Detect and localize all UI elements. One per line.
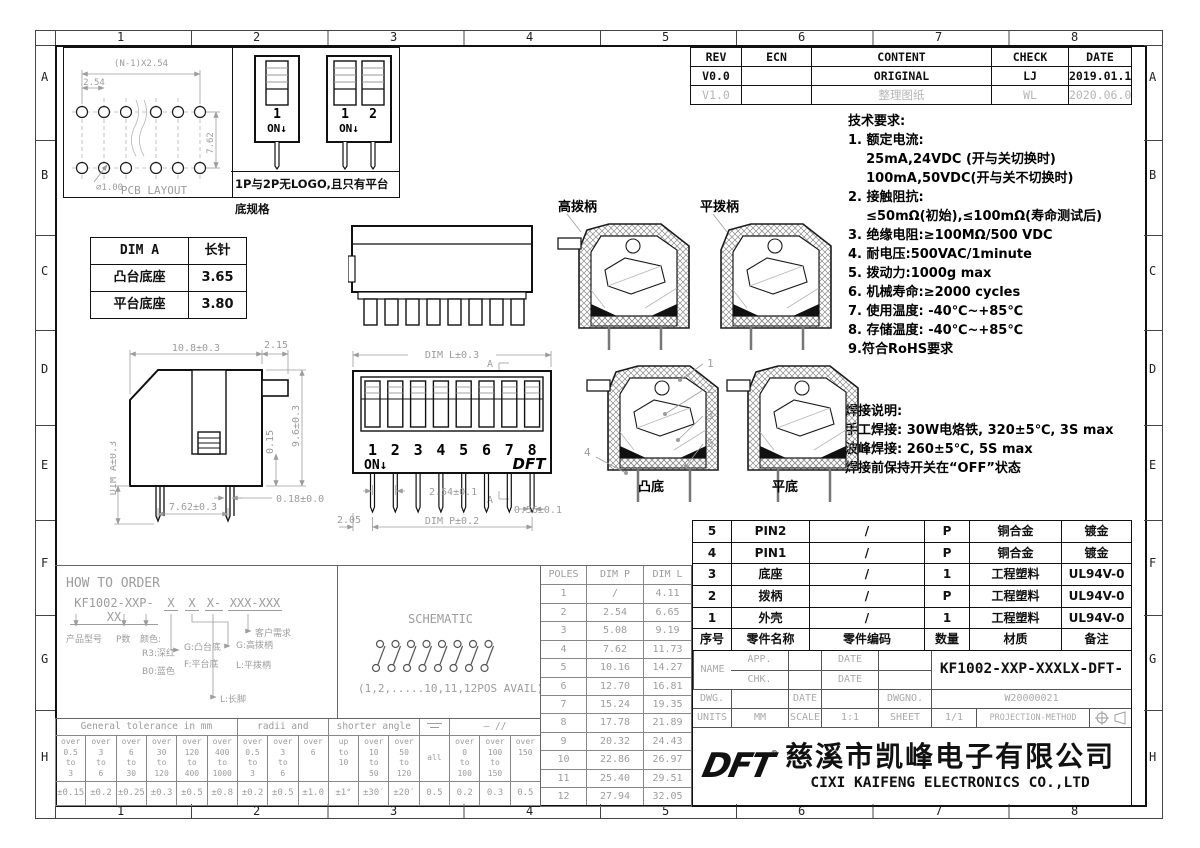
order-label-color: 颜色: <box>140 632 161 645</box>
bom-cell: 铜合金 <box>969 521 1061 542</box>
projection-symbol-icon <box>1089 708 1131 727</box>
tol-range: over 100 to 150 <box>479 736 509 782</box>
tol-value: 0.3 <box>479 782 509 806</box>
order-color-1: R3:深红 <box>142 646 175 659</box>
row-label: H <box>41 750 48 764</box>
row-label: G <box>1149 652 1156 666</box>
projection-label: PROJECTION-METHOD <box>976 708 1089 727</box>
row-label: H <box>1149 750 1156 764</box>
poles-cell: 9.19 <box>643 621 691 639</box>
row-label: G <box>41 652 48 666</box>
poles-cell: 2 <box>541 603 586 621</box>
bom-header: 材质 <box>969 628 1061 650</box>
tol-range: up to 10 <box>328 736 358 782</box>
bom-cell: 1 <box>924 563 969 585</box>
order-pin-label: L:长脚 <box>220 692 246 705</box>
poles-cell: 21.89 <box>643 713 691 731</box>
solder-line: 焊接前保持开关在“OFF”状态 <box>845 459 1021 478</box>
tol-value: ±30′ <box>358 782 388 806</box>
poles-cell: 14.27 <box>643 658 691 676</box>
bom-cell: 4 <box>693 542 731 564</box>
col-label: 3 <box>390 804 397 818</box>
tol-range: over 400 to 1000 <box>207 736 237 782</box>
dwgno-value: W20000021 <box>931 689 1131 708</box>
tol-value: ±20′ <box>388 782 418 806</box>
col-label: 2 <box>253 804 260 818</box>
right-tick-strip <box>1144 45 1163 805</box>
side-view-drawing: 10.8±0.3 2.15 9.6±0.3 0.15 0.18±0.05 7.6… <box>110 338 325 533</box>
tech-line: 5. 拨动力:1000g max <box>848 264 991 283</box>
tol-value: ±0.2 <box>85 782 115 806</box>
tol-value: ±1° <box>328 782 358 806</box>
tech-line: 6. 机械寿命:≥2000 cycles <box>848 283 1020 302</box>
poles-cell: 27.94 <box>586 787 643 805</box>
tol-value: ±0.2 <box>237 782 267 806</box>
date-value <box>878 651 931 670</box>
bom-cell: UL94V-0 <box>1061 585 1131 607</box>
poles-cell: 29.51 <box>643 769 691 787</box>
callout-number: 3 <box>707 409 714 422</box>
front-dim-pin-w: 0.56±0.1 <box>514 505 562 516</box>
bom-cell: 镀金 <box>1061 542 1131 564</box>
bom-cell: 3 <box>693 563 731 585</box>
poles-header: DIM L <box>643 566 691 584</box>
poles-cell: 4 <box>541 640 586 658</box>
poles-cell: 8 <box>541 713 586 731</box>
app-label: APP. <box>731 651 788 670</box>
poles-cell: 6 <box>541 677 586 695</box>
row-label: D <box>1149 362 1156 376</box>
solder-line: 手工焊接: 30W电烙铁, 320±5℃, 3S max <box>845 421 1114 440</box>
col-label: 1 <box>117 804 124 818</box>
poles-cell: 5 <box>541 658 586 676</box>
rev-cell <box>741 85 811 104</box>
schematic-title: SCHEMATIC <box>408 612 473 626</box>
bom-header: 序号 <box>693 628 731 650</box>
poles-cell: 20.32 <box>586 732 643 750</box>
tol-range: over 0 to 100 <box>449 736 479 782</box>
rev-cell: WL <box>991 85 1068 104</box>
sw2-number-1: 1 <box>341 107 349 122</box>
col-label: 4 <box>526 804 533 818</box>
callout-number: 2 <box>707 383 714 396</box>
tech-line: 7. 使用温度: -40℃~+85℃ <box>848 302 1023 321</box>
company-name-cn: 慈溪市凯峰电子有限公司 <box>785 740 1115 774</box>
company-block: DFT ® 慈溪市凯峰电子有限公司 CIXI KAIFENG ELECTRONI… <box>693 727 1131 803</box>
mini-switch-note: 1P与2P无LOGO,且只有平台底规格 <box>231 171 399 197</box>
poles-cell: 25.40 <box>586 769 643 787</box>
poles-cell: 16.81 <box>643 677 691 695</box>
tech-line: 100mA,50VDC(开与关不切换时) <box>848 169 1073 188</box>
bom-cell: / <box>809 563 924 585</box>
dft-logo: DFT <box>701 757 773 775</box>
tol-range: over 120 to 400 <box>176 736 206 782</box>
rev-cell <box>741 66 811 85</box>
row-label: E <box>1149 458 1156 472</box>
scale-label: SCALE <box>788 708 821 727</box>
rev-header: CONTENT <box>811 48 991 66</box>
callout-number: 1 <box>707 357 714 370</box>
col-label: 6 <box>798 30 805 44</box>
front-dim-top: DIM L±0.3 <box>425 350 479 361</box>
bom-cell: 拨柄 <box>731 585 809 607</box>
row-label: A <box>41 70 48 84</box>
title-block: APP. DATE NAME KF1002-XXP-XXXLX-DFT-XXX … <box>692 650 1132 807</box>
poles-cell: 22.86 <box>586 750 643 768</box>
mini-switch-panel: 1 ON↓ 1 2 ON↓ 1P与2P无LOGO,且只有平台底规格 <box>231 47 400 198</box>
tech-line: 9.符合RoHS要求 <box>848 340 953 359</box>
bom-cell: UL94V-0 <box>1061 563 1131 585</box>
row-label: F <box>1149 556 1156 570</box>
poles-cell: 24.43 <box>643 732 691 750</box>
order-customer-label: 客户需求 <box>255 626 291 639</box>
left-tick-strip <box>36 45 55 805</box>
tolerance-table: General tolerance in mm radii and chamfe… <box>55 718 541 806</box>
col-label: 1 <box>117 30 124 44</box>
poles-cell: 26.97 <box>643 750 691 768</box>
sw1-on-label: ON↓ <box>267 122 287 135</box>
rev-cell: ORIGINAL <box>811 66 991 85</box>
bom-cell: 2 <box>693 585 731 607</box>
tol-value: ±1.0 <box>298 782 328 806</box>
flatness-symbol <box>419 719 449 736</box>
side-dim-pinlen: DIM A±0.3 <box>110 441 119 495</box>
tech-line: 2. 接触阻抗: <box>848 188 924 207</box>
poles-cell: / <box>586 584 643 602</box>
dim-a-header: 长针 <box>188 238 246 264</box>
poles-cell: 10 <box>541 750 586 768</box>
tech-line: 1. 额定电流: <box>848 131 924 150</box>
side-dim-step: 0.15 <box>265 430 276 454</box>
col-label: 8 <box>1071 30 1078 44</box>
poles-cell: 1 <box>541 584 586 602</box>
bom-cell: / <box>809 521 924 542</box>
poles-cell: 11 <box>541 769 586 787</box>
tol-value: ±0.25 <box>116 782 146 806</box>
dim-a-table: DIM A 长针 凸台底座 3.65 平台底座 3.80 <box>90 237 247 319</box>
poles-header: DIM P <box>586 566 643 584</box>
tol-range: over 3 to 6 <box>85 736 115 782</box>
tech-line: 3. 绝缘电阻:≥100MΩ/500 VDC <box>848 226 1053 245</box>
tol-range: over 0.5 to 3 <box>55 736 85 782</box>
revision-table: REV ECN CONTENT CHECK DATE V0.0 ORIGINAL… <box>690 47 1132 105</box>
rev-cell: 2020.06.03 <box>1068 85 1131 104</box>
sw2-number-2: 2 <box>369 107 377 122</box>
front-pos-number: 3 <box>414 441 423 459</box>
tech-line: 4. 耐电压:500VAC/1minute <box>848 245 1032 264</box>
bom-cell: UL94V-0 <box>1061 607 1131 629</box>
date-label: DATE <box>821 670 878 689</box>
scale-value: 1:1 <box>821 708 878 727</box>
bom-cell: 5 <box>693 521 731 542</box>
poles-cell: 6.65 <box>643 603 691 621</box>
tech-line: 25mA,24VDC (开与关切换时) <box>848 150 1056 169</box>
chk-label: CHK. <box>731 670 788 689</box>
col-label: 5 <box>662 30 669 44</box>
name-value: KF1002-XXP-XXXLX-DFT-XXX <box>931 651 1131 689</box>
bom-header: 数量 <box>924 628 969 650</box>
dwg-value <box>731 689 788 708</box>
bom-cell: 镀金 <box>1061 521 1131 542</box>
tol-range: over 150 <box>510 736 540 782</box>
front-pos-number: 2 <box>391 441 400 459</box>
bom-cell: P <box>924 585 969 607</box>
dim-a-cell: 凸台底座 <box>91 264 188 291</box>
bom-header: 备注 <box>1061 628 1131 650</box>
units-label: UNITS <box>693 708 731 727</box>
dft-logo: DFT <box>513 455 548 473</box>
tol-value: 0.5 <box>419 782 449 806</box>
bom-cell: 1 <box>693 607 731 629</box>
bom-cell: PIN1 <box>731 542 809 564</box>
bom-cell: 外壳 <box>731 607 809 629</box>
poles-cell: 10.16 <box>586 658 643 676</box>
upper-sections-drawing <box>545 210 845 350</box>
bottom-view-drawing <box>348 220 538 332</box>
order-actuator-2: L:平拨柄 <box>236 658 271 671</box>
bom-cell: / <box>809 585 924 607</box>
poles-table: POLES DIM P DIM L 1/4.11 22.546.65 35.08… <box>540 565 692 807</box>
top-tick-strip <box>55 31 1145 45</box>
order-base-2: F:平台底 <box>184 657 219 670</box>
bom-cell: 1 <box>924 607 969 629</box>
order-base-1: G:凸台底 <box>184 640 221 653</box>
poles-cell: 4.11 <box>643 584 691 602</box>
side-dim-pitch: 7.62±0.3 <box>169 502 217 513</box>
callout-number: 4 <box>584 446 591 459</box>
date-label: DATE <box>788 689 821 708</box>
tol-range: over 6 <box>298 736 328 782</box>
order-label-model: 产品型号 <box>66 632 102 645</box>
side-dim-width: 10.8±0.3 <box>172 343 220 354</box>
front-pos-number: 1 <box>368 441 377 459</box>
pcb-layout-caption: PCB LAYOUT <box>121 184 188 197</box>
convex-bottom-label: 凸底 <box>638 476 664 495</box>
tol-value: 0.5 <box>510 782 540 806</box>
col-label: 3 <box>390 30 397 44</box>
rev-header: DATE <box>1068 48 1131 66</box>
date-value <box>878 670 931 689</box>
sw1-number: 1 <box>273 107 281 122</box>
rev-cell: V0.0 <box>691 66 741 85</box>
col-label: 4 <box>526 30 533 44</box>
bom-header: 零件名称 <box>731 628 809 650</box>
row-label: D <box>41 362 48 376</box>
tol-range: over 6 to 30 <box>116 736 146 782</box>
sheet-value: 1/1 <box>931 708 976 727</box>
poles-cell: 7.62 <box>586 640 643 658</box>
row-label: B <box>41 168 48 182</box>
poles-cell: 12 <box>541 787 586 805</box>
order-actuator-1: G:高拨柄 <box>236 638 273 651</box>
poles-cell: 17.78 <box>586 713 643 731</box>
tech-line: ≤50mΩ(初始),≤100mΩ(寿命测试后) <box>848 207 1102 226</box>
front-on-label: ON↓ <box>364 458 387 473</box>
front-dim-p: DIM P±0.2 <box>425 516 479 527</box>
dim-a-header: DIM A <box>91 238 188 264</box>
tol-range: over 10 to 50 <box>358 736 388 782</box>
front-dim-pitch: 2.54±0.1 <box>429 487 477 498</box>
rev-cell: 整理图纸 <box>811 85 991 104</box>
tol-section-angle: shorter angle side <box>328 719 419 736</box>
pcb-dim-span: (N-1)X2.54 <box>114 59 168 69</box>
side-dim-pin-t: 0.18±0.05 <box>276 494 325 505</box>
bom-cell: 工程塑料 <box>969 585 1061 607</box>
tol-value: ±0.15 <box>55 782 85 806</box>
bom-cell: 底座 <box>731 563 809 585</box>
dim-a-cell: 3.65 <box>188 264 246 291</box>
front-dim-left: 2.05 <box>337 515 361 526</box>
poles-cell: 7 <box>541 695 586 713</box>
rev-cell: V1.0 <box>691 85 741 104</box>
rev-cell: LJ <box>991 66 1068 85</box>
row-label: E <box>41 458 48 472</box>
row-label: B <box>1149 168 1156 182</box>
poles-cell: 12.70 <box>586 677 643 695</box>
order-color-2: B0:蓝色 <box>142 664 175 677</box>
front-pos-number: 6 <box>482 441 491 459</box>
drawing-sheet: 1 2 3 4 5 6 7 8 1 2 3 4 5 6 7 8 A B C D … <box>0 0 1200 848</box>
schematic-symbols <box>368 636 508 678</box>
dim-a-cell: 平台底座 <box>91 291 188 318</box>
rev-header: ECN <box>741 48 811 66</box>
bom-cell: 工程塑料 <box>969 607 1061 629</box>
lower-sections-drawing: 1 2 3 4 5 <box>570 352 860 502</box>
row-label: C <box>1149 264 1156 278</box>
flat-bottom-label: 平底 <box>772 476 798 495</box>
poles-cell: 11.73 <box>643 640 691 658</box>
pcb-layout-panel: (N-1)X2.54 2.54 7.62 ⌀1.00 PCB LAY <box>63 47 233 198</box>
bom-table: 5 PIN2 / P 铜合金 镀金 4 PIN1 / P 铜合金 镀金 3 底座… <box>692 520 1132 651</box>
tol-section-radii: radii and chamfers <box>237 719 328 736</box>
dwg-label: DWG. <box>693 689 731 708</box>
poles-cell: 5.08 <box>586 621 643 639</box>
tol-section-general: General tolerance in mm <box>55 719 237 736</box>
col-label: 2 <box>253 30 260 44</box>
tol-range: over 50 to 120 <box>388 736 418 782</box>
mini-switch-drawing: 1 ON↓ 1 2 ON↓ <box>231 48 397 170</box>
front-section-a-top: A <box>487 359 493 370</box>
side-dim-height: 9.6±0.3 <box>291 405 302 447</box>
rev-cell: 2019.01.13 <box>1068 66 1131 85</box>
pcb-dim-hole: ⌀1.00 <box>96 183 123 193</box>
front-pos-number: 4 <box>436 441 445 459</box>
col-label: 7 <box>935 30 942 44</box>
poles-header: POLES <box>541 566 586 584</box>
tol-value: ±0.5 <box>267 782 297 806</box>
bom-cell: P <box>924 542 969 564</box>
pcb-dim-row: 7.62 <box>206 132 216 154</box>
row-label: F <box>41 556 48 570</box>
dim-a-cell: 3.80 <box>188 291 246 318</box>
tol-value: 0.2 <box>449 782 479 806</box>
tech-line: 8. 存储温度: -40℃~+85℃ <box>848 321 1023 340</box>
pcb-dim-pitch: 2.54 <box>83 78 105 88</box>
schematic-caption: (1,2,.....10,11,12POS AVAIL) <box>358 682 543 695</box>
poles-cell: 32.05 <box>643 787 691 805</box>
callout-number: 5 <box>707 437 714 450</box>
registered-mark: ® <box>772 745 777 763</box>
company-name-en: CIXI KAIFENG ELECTRONICS CO.,LTD <box>785 774 1115 792</box>
pcb-layout-drawing: (N-1)X2.54 2.54 7.62 ⌀1.00 PCB LAY <box>64 48 232 197</box>
tol-value: ±0.3 <box>146 782 176 806</box>
poles-cell: 15.24 <box>586 695 643 713</box>
order-label-poles: P数 <box>116 632 130 645</box>
sw2-on-label: ON↓ <box>339 122 359 135</box>
tol-value: ±0.5 <box>176 782 206 806</box>
poles-cell: 19.35 <box>643 695 691 713</box>
front-view-drawing: DIM L±0.3 A A 1 2 3 4 5 6 <box>333 343 563 538</box>
dwgno-label: DWGNO. <box>878 689 931 708</box>
app-value <box>788 651 821 670</box>
tol-range: over 0.5 to 3 <box>237 736 267 782</box>
bom-header: 零件编码 <box>809 628 924 650</box>
poles-cell: 2.54 <box>586 603 643 621</box>
rev-header: REV <box>691 48 741 66</box>
bom-cell: P <box>924 521 969 542</box>
units-value: MM <box>731 708 788 727</box>
side-dim-stub: 2.15 <box>264 340 288 351</box>
tol-value: ±0.8 <box>207 782 237 806</box>
bom-cell: PIN2 <box>731 521 809 542</box>
bom-cell: / <box>809 607 924 629</box>
row-label: C <box>41 264 48 278</box>
bom-cell: / <box>809 542 924 564</box>
tech-title: 技术要求: <box>848 112 905 131</box>
bom-cell: 铜合金 <box>969 542 1061 564</box>
solder-line: 波峰焊接: 260±5℃, 5S max <box>845 440 1033 459</box>
poles-cell: 9 <box>541 732 586 750</box>
chk-value <box>788 670 821 689</box>
name-label: NAME <box>693 651 731 689</box>
poles-cell: 3 <box>541 621 586 639</box>
rev-header: CHECK <box>991 48 1068 66</box>
row-label: A <box>1149 70 1156 84</box>
tol-range: over 30 to 120 <box>146 736 176 782</box>
tol-section-straight-parallel: — // <box>449 719 540 736</box>
front-pos-number: 5 <box>459 441 468 459</box>
tol-range: over 3 to 6 <box>267 736 297 782</box>
date-value <box>821 689 878 708</box>
bom-cell: 工程塑料 <box>969 563 1061 585</box>
tol-range: all <box>419 736 449 782</box>
date-label: DATE <box>821 651 878 670</box>
sheet-label: SHEET <box>878 708 931 727</box>
